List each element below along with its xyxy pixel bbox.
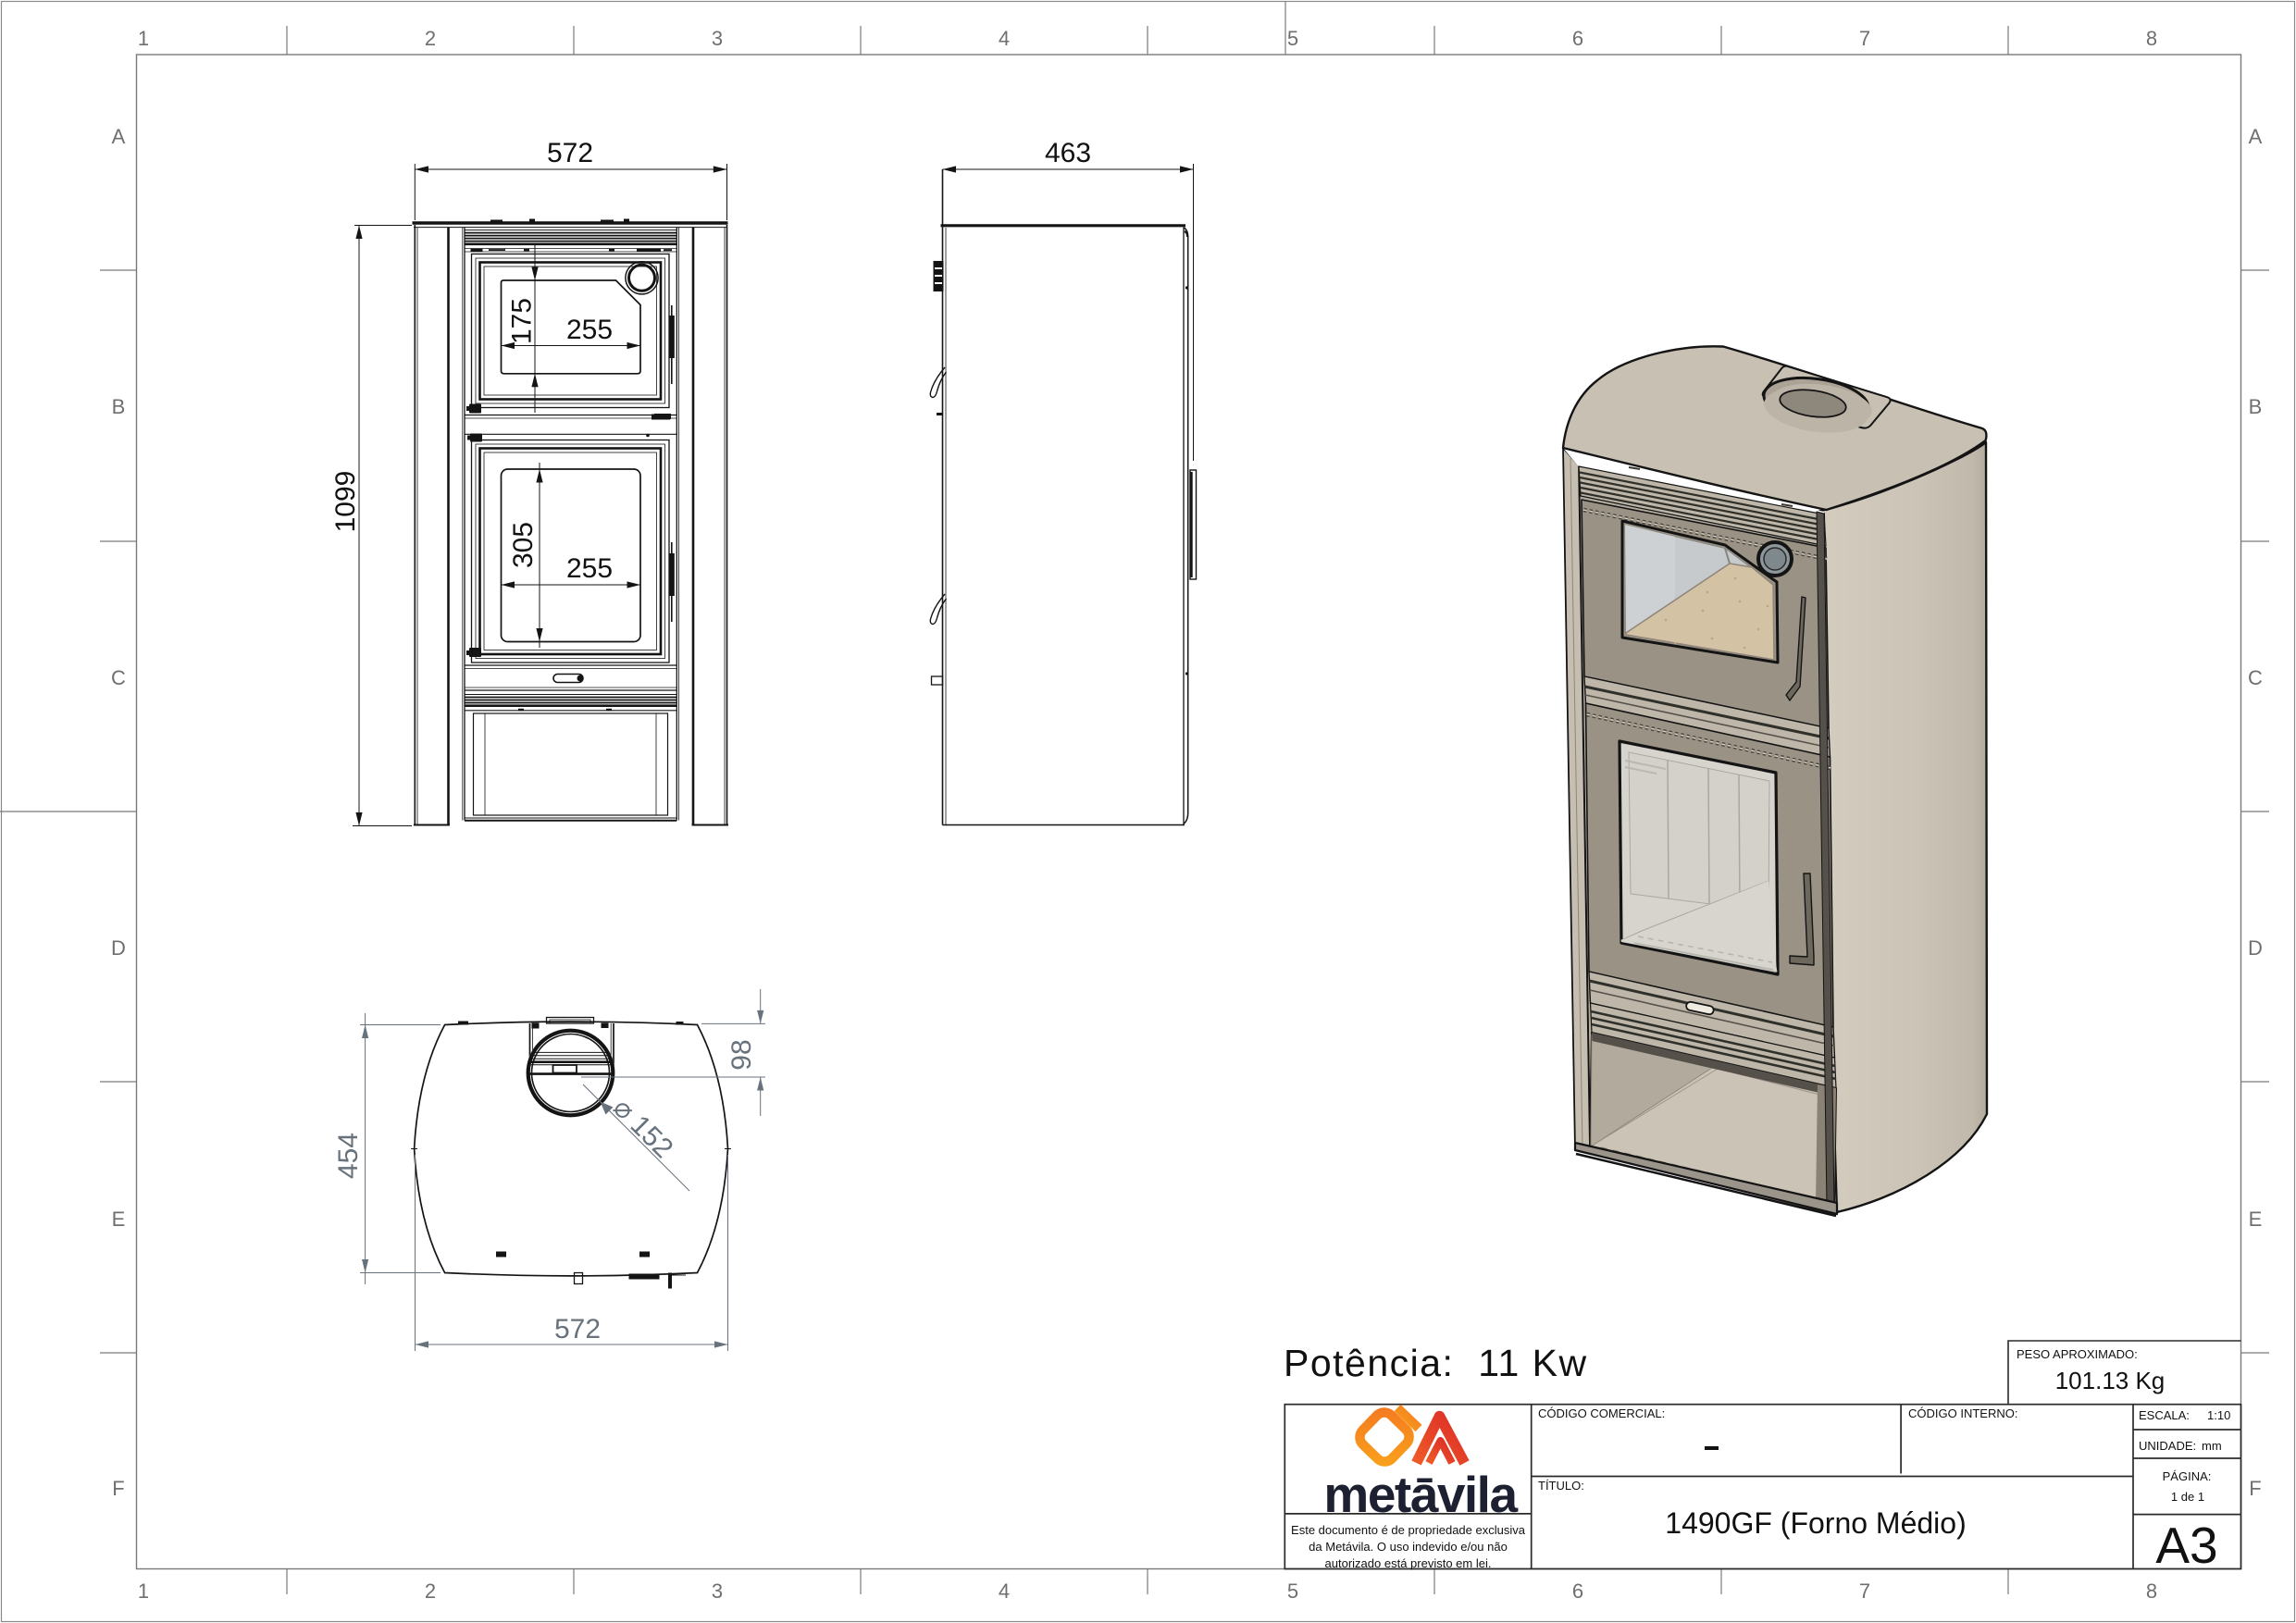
svg-text:5: 5 (1287, 27, 1298, 50)
svg-text:305: 305 (508, 522, 539, 568)
svg-text:6: 6 (1572, 1580, 1583, 1603)
svg-text:3: 3 (712, 27, 723, 50)
svg-text:4: 4 (999, 27, 1010, 50)
svg-text:autorizado está previsto em le: autorizado está previsto em lei. (1325, 1556, 1492, 1570)
svg-text:7: 7 (1859, 1580, 1870, 1603)
svg-text:CÓDIGO INTERNO:: CÓDIGO INTERNO: (1908, 1406, 2017, 1420)
svg-text:98: 98 (726, 1039, 757, 1070)
svg-text:F: F (112, 1477, 124, 1500)
svg-text:CÓDIGO COMERCIAL:: CÓDIGO COMERCIAL: (1538, 1406, 1665, 1420)
svg-text:A: A (112, 125, 126, 148)
svg-text:Este documento é de propriedad: Este documento é de propriedade exclusiv… (1291, 1523, 1526, 1537)
svg-text:PÁGINA:: PÁGINA: (2163, 1469, 2212, 1483)
svg-text:C: C (2248, 666, 2263, 689)
svg-text:metāvila: metāvila (1323, 1466, 1518, 1523)
svg-text:ESCALA:: ESCALA: (2139, 1408, 2190, 1422)
svg-text:101.13 Kg: 101.13 Kg (2055, 1367, 2166, 1394)
svg-text:6: 6 (1572, 27, 1583, 50)
svg-text:463: 463 (1045, 138, 1091, 168)
svg-text:572: 572 (554, 1314, 601, 1344)
svg-text:1:10: 1:10 (2207, 1408, 2230, 1422)
svg-text:8: 8 (2146, 27, 2157, 50)
svg-text:A: A (2249, 125, 2263, 148)
svg-text:255: 255 (566, 315, 613, 345)
svg-text:TÍTULO:: TÍTULO: (1538, 1479, 1584, 1493)
svg-text:B: B (112, 395, 126, 418)
svg-text:2: 2 (425, 1580, 436, 1603)
svg-text:E: E (112, 1208, 126, 1231)
svg-text:1099: 1099 (330, 471, 361, 533)
svg-text:2: 2 (425, 27, 436, 50)
svg-text:7: 7 (1859, 27, 1870, 50)
svg-text:E: E (2249, 1208, 2263, 1231)
svg-text:UNIDADE:: UNIDADE: (2139, 1439, 2196, 1453)
svg-text:5: 5 (1287, 1580, 1298, 1603)
svg-text:175: 175 (507, 298, 538, 344)
svg-text:B: B (2249, 395, 2263, 418)
svg-text:454: 454 (333, 1133, 364, 1179)
svg-text:mm: mm (2202, 1439, 2222, 1453)
svg-text:PESO APROXIMADO:: PESO APROXIMADO: (2017, 1347, 2138, 1361)
svg-text:1490GF (Forno Médio): 1490GF (Forno Médio) (1665, 1506, 1966, 1540)
svg-text:F: F (2249, 1477, 2261, 1500)
svg-text:1: 1 (138, 27, 149, 50)
svg-text:4: 4 (999, 1580, 1010, 1603)
svg-text:8: 8 (2146, 1580, 2157, 1603)
svg-text:C: C (111, 666, 126, 689)
svg-text:A3: A3 (2155, 1517, 2217, 1574)
svg-text:3: 3 (712, 1580, 723, 1603)
svg-text:255: 255 (566, 553, 613, 584)
svg-text:da Metávila. O uso indevido e/: da Metávila. O uso indevido e/ou não (1309, 1540, 1508, 1554)
svg-text:572: 572 (547, 138, 593, 168)
svg-text:Potência: 11 Kw: Potência: 11 Kw (1284, 1342, 1588, 1384)
svg-text:D: D (2248, 936, 2263, 960)
svg-text:1 de 1: 1 de 1 (2171, 1490, 2204, 1504)
svg-text:1: 1 (138, 1580, 149, 1603)
svg-text:D: D (111, 936, 126, 960)
